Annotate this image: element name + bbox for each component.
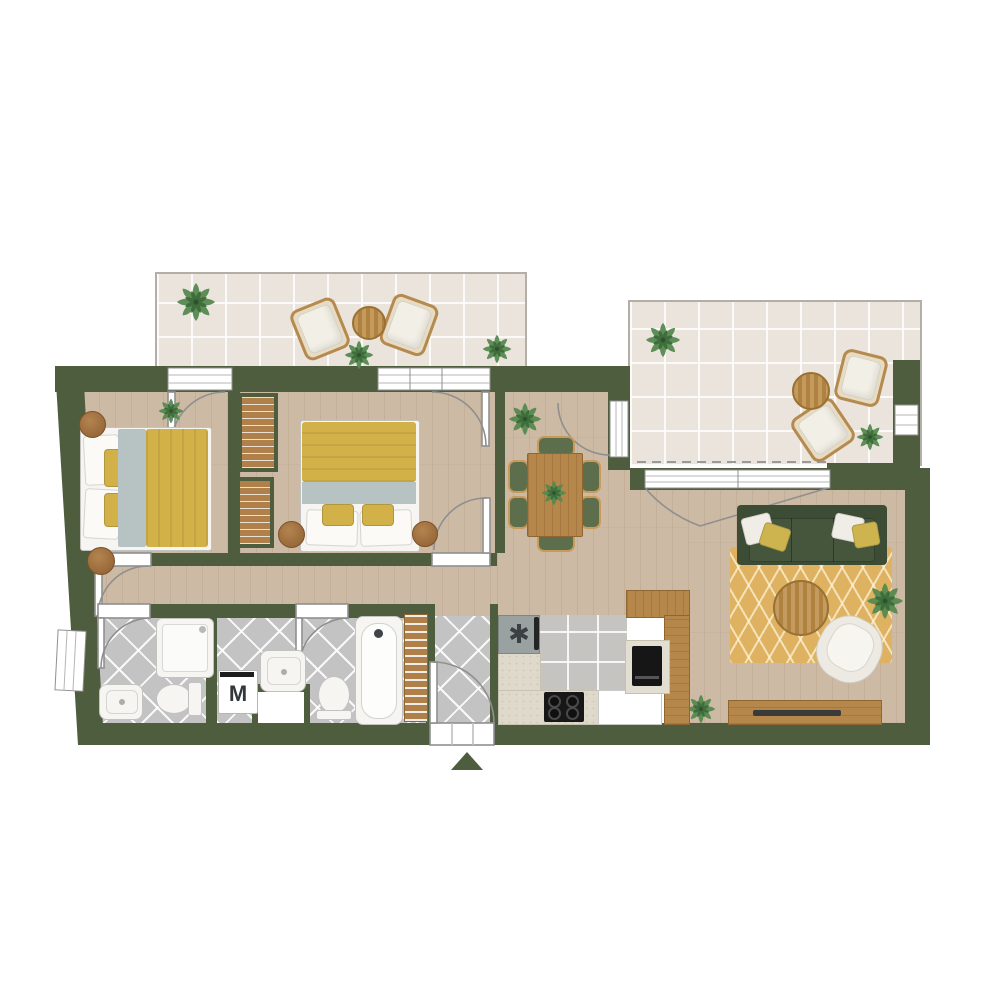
bedroom-2-door (432, 498, 490, 566)
shower (156, 618, 214, 678)
plant (158, 398, 184, 424)
round-table (792, 372, 830, 410)
bedroom-2-balcony-door (432, 392, 489, 446)
pouf (278, 521, 305, 548)
plant (344, 340, 374, 370)
plant (176, 282, 216, 322)
plant (541, 480, 567, 506)
toilet (156, 682, 202, 714)
kitchen-appliance (598, 690, 662, 725)
washbasin (99, 684, 143, 720)
pouf (412, 521, 438, 547)
dining-chair (508, 460, 529, 493)
sofa (737, 505, 887, 565)
entrance-door (430, 662, 494, 745)
round-table (352, 306, 386, 340)
plant (645, 322, 681, 358)
washing-machine-label: M (219, 677, 257, 711)
pouf (79, 411, 106, 438)
toilet (316, 676, 350, 718)
dining-chair (580, 460, 601, 493)
bed-double (300, 420, 418, 550)
washing-machine: M (218, 670, 258, 714)
plant (508, 402, 542, 436)
bathroom-1-window (55, 630, 86, 691)
bathroom-1-door (98, 604, 151, 668)
duct-niche (258, 692, 304, 723)
entrance-marker-icon (451, 752, 483, 770)
coffee-table (773, 580, 829, 636)
tv (753, 710, 841, 716)
sink-icon: ✱ (508, 619, 530, 650)
washbasin (260, 650, 306, 692)
floor-plan: ✱ M (0, 0, 1000, 1000)
dining-chair (508, 496, 529, 529)
kitchen-faucet (534, 617, 539, 650)
bedroom-2-window (378, 368, 490, 390)
wardrobe (238, 393, 278, 472)
bathtub (355, 616, 403, 725)
plant (856, 423, 884, 451)
cooktop (544, 692, 584, 722)
oven (632, 646, 662, 686)
pouf (87, 547, 115, 575)
balcony-right-window (895, 405, 918, 435)
plant (686, 694, 716, 724)
plant (482, 334, 512, 364)
kitchen-tall-cabinets (626, 590, 690, 618)
wardrobe (236, 477, 274, 548)
bed-double (80, 427, 210, 549)
towel-rack (404, 614, 428, 722)
living-room-balcony-door-frame (645, 470, 830, 488)
dining-balcony-door-frame (610, 401, 628, 457)
bedroom-1-balcony-door-frame (168, 368, 232, 390)
plant (866, 582, 904, 620)
dining-chair (580, 496, 601, 529)
